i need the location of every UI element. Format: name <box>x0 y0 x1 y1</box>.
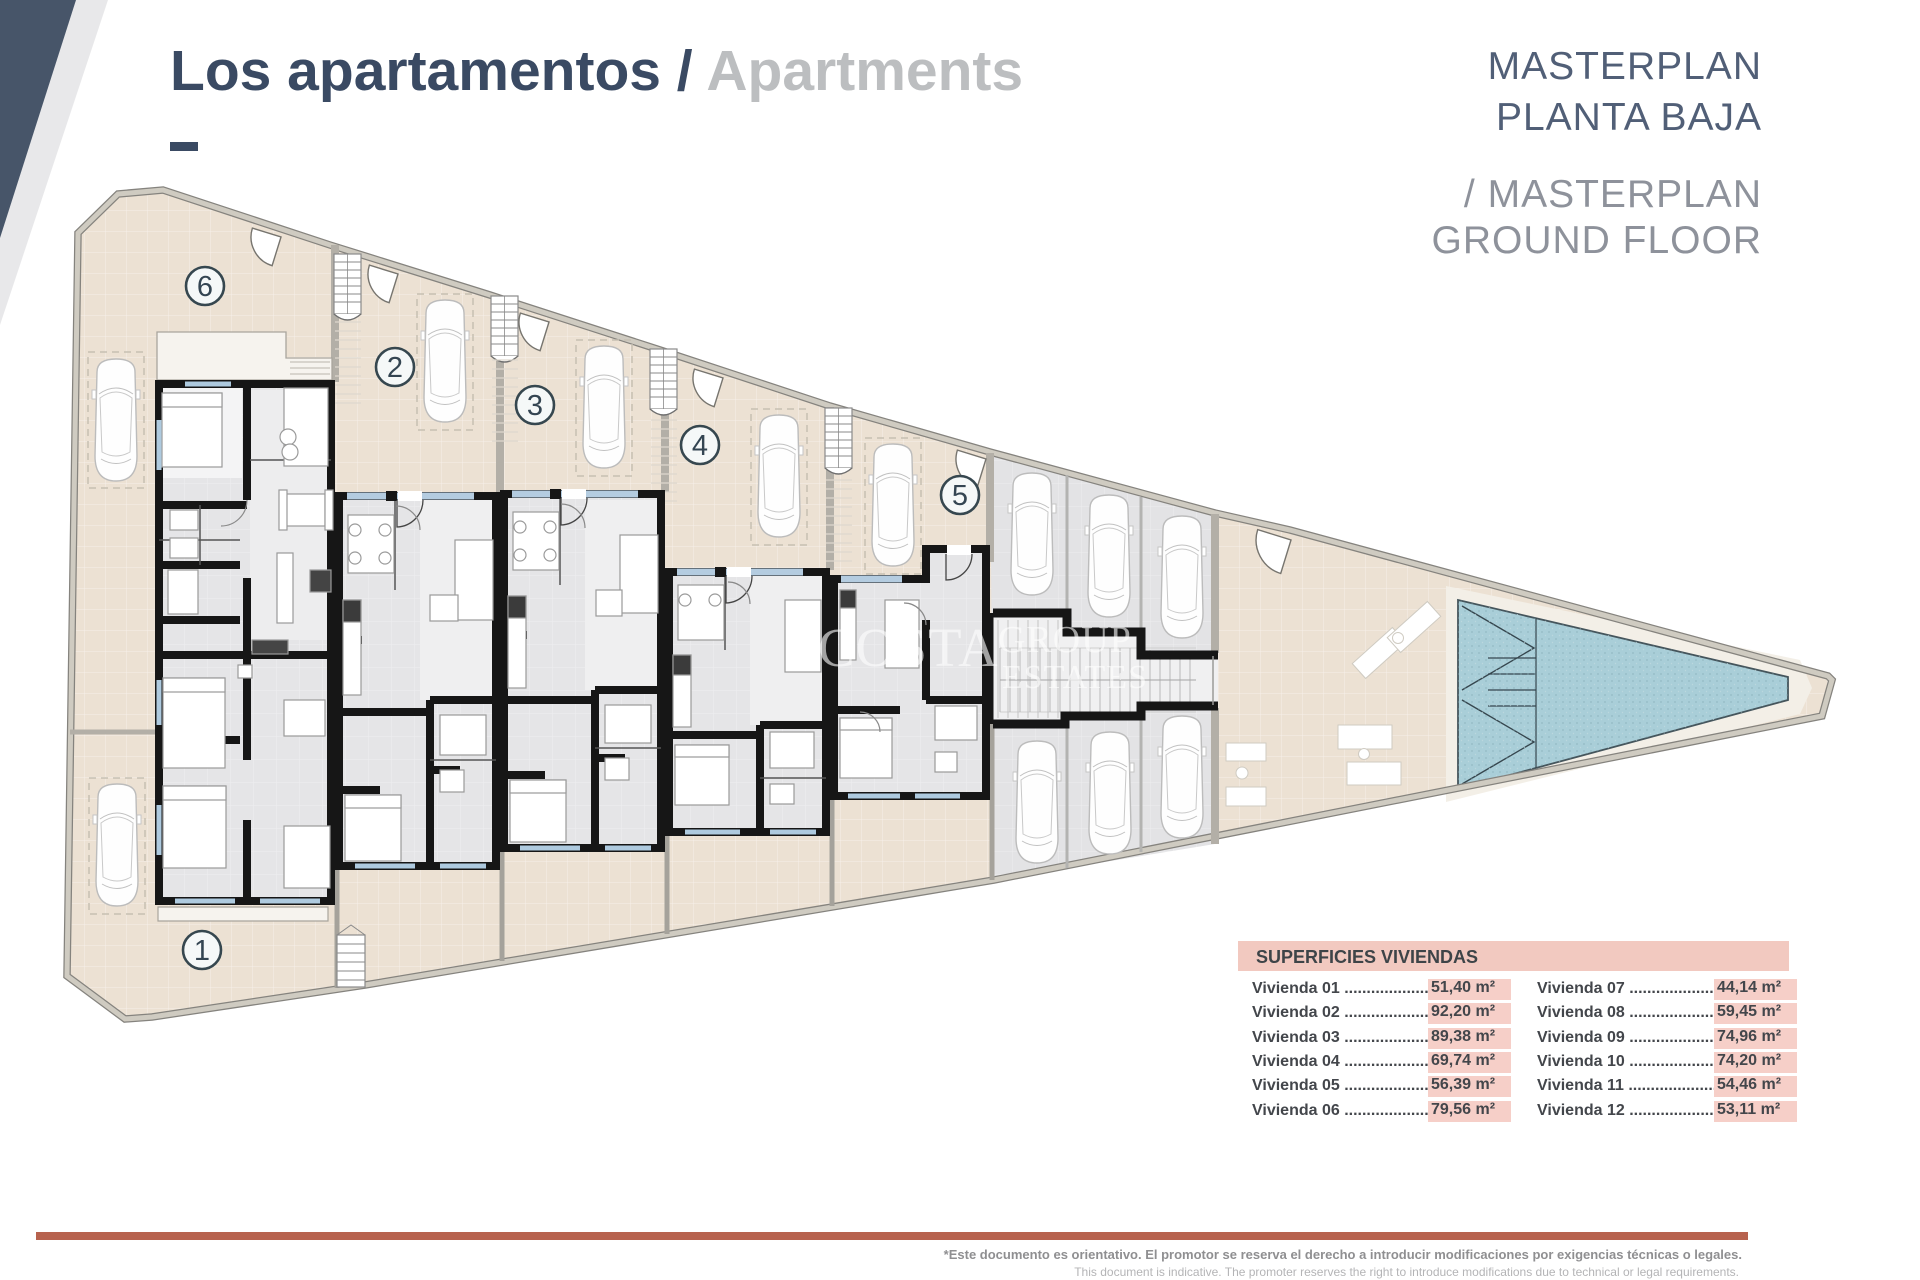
svg-text:1: 1 <box>194 935 210 967</box>
svg-text:5: 5 <box>952 480 968 512</box>
svg-text:6: 6 <box>197 271 213 303</box>
svg-text:3: 3 <box>527 390 543 422</box>
svg-text:GROUP: GROUP <box>998 619 1132 661</box>
svg-text:COSTA: COSTA <box>818 617 999 678</box>
svg-text:2: 2 <box>387 352 403 384</box>
svg-text:4: 4 <box>692 430 708 462</box>
svg-text:ESTATES: ESTATES <box>1002 659 1148 696</box>
